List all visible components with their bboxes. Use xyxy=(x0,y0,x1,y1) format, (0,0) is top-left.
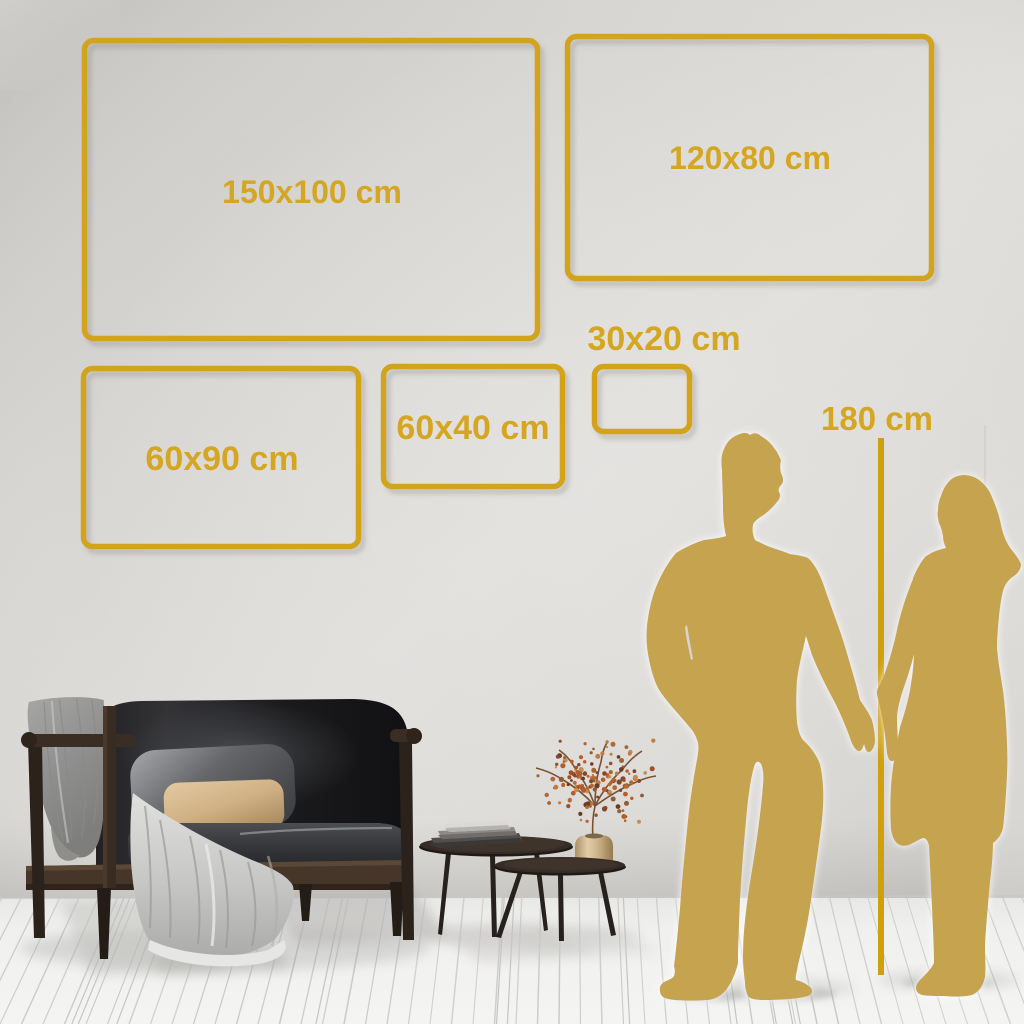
svg-text:120x80 cm: 120x80 cm xyxy=(669,140,831,176)
svg-text:30x20 cm: 30x20 cm xyxy=(587,320,740,358)
svg-text:60x90 cm: 60x90 cm xyxy=(145,440,298,478)
svg-text:150x100 cm: 150x100 cm xyxy=(222,174,402,210)
svg-text:180 cm: 180 cm xyxy=(821,400,933,437)
svg-text:60x40 cm: 60x40 cm xyxy=(396,409,549,447)
